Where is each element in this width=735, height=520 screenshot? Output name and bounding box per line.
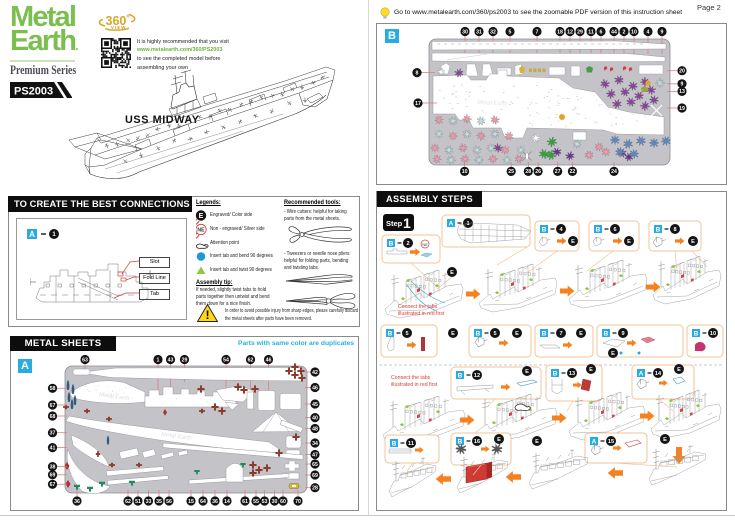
svg-text:32: 32 bbox=[490, 29, 496, 35]
svg-text:12: 12 bbox=[567, 29, 573, 35]
svg-text:14: 14 bbox=[655, 371, 662, 377]
svg-text:4: 4 bbox=[647, 29, 650, 35]
svg-text:7: 7 bbox=[536, 29, 539, 35]
svg-text:illustrated in red first: illustrated in red first bbox=[391, 382, 438, 388]
svg-text:A: A bbox=[639, 370, 644, 377]
svg-text:B: B bbox=[458, 372, 463, 379]
svg-text:58: 58 bbox=[50, 386, 56, 392]
svg-text:34: 34 bbox=[312, 441, 318, 447]
svg-text:14: 14 bbox=[224, 499, 230, 505]
svg-text:B: B bbox=[542, 226, 547, 233]
svg-text:60: 60 bbox=[280, 499, 286, 505]
svg-text:6: 6 bbox=[600, 29, 603, 35]
svg-text:B: B bbox=[553, 370, 558, 377]
svg-text:B: B bbox=[476, 330, 481, 337]
svg-text:46: 46 bbox=[312, 385, 318, 391]
svg-text:9: 9 bbox=[621, 331, 624, 337]
svg-text:Connect the tabs: Connect the tabs bbox=[398, 304, 438, 310]
svg-text:29: 29 bbox=[577, 29, 583, 35]
svg-text:E: E bbox=[571, 239, 575, 245]
svg-text:67: 67 bbox=[50, 482, 56, 488]
svg-text:46: 46 bbox=[266, 357, 272, 363]
svg-text:8: 8 bbox=[416, 70, 419, 76]
svg-text:47: 47 bbox=[312, 452, 318, 458]
svg-text:33: 33 bbox=[146, 499, 152, 505]
svg-text:B: B bbox=[656, 226, 661, 233]
svg-text:2: 2 bbox=[406, 241, 409, 247]
svg-text:5: 5 bbox=[405, 331, 408, 337]
svg-text:Connect the tabs: Connect the tabs bbox=[391, 375, 431, 381]
svg-text:E: E bbox=[497, 437, 501, 443]
svg-text:68: 68 bbox=[50, 414, 56, 420]
svg-text:36: 36 bbox=[74, 499, 80, 505]
svg-text:67: 67 bbox=[50, 403, 56, 409]
svg-text:15: 15 bbox=[188, 499, 194, 505]
svg-text:B: B bbox=[604, 330, 609, 337]
svg-text:E: E bbox=[535, 439, 539, 445]
svg-text:19: 19 bbox=[679, 106, 685, 112]
svg-text:10: 10 bbox=[462, 169, 468, 175]
svg-text:5: 5 bbox=[509, 29, 512, 35]
svg-text:15: 15 bbox=[608, 439, 614, 445]
svg-text:E: E bbox=[677, 367, 681, 373]
svg-text:63: 63 bbox=[82, 357, 88, 363]
svg-text:62: 62 bbox=[248, 357, 254, 363]
svg-text:48: 48 bbox=[312, 426, 318, 432]
svg-text:1: 1 bbox=[157, 357, 160, 363]
svg-text:28: 28 bbox=[525, 169, 531, 175]
svg-text:53: 53 bbox=[262, 499, 268, 505]
svg-text:E: E bbox=[579, 331, 583, 337]
svg-text:9: 9 bbox=[681, 82, 684, 88]
svg-text:E: E bbox=[451, 331, 455, 337]
svg-text:56: 56 bbox=[166, 499, 172, 505]
svg-text:12: 12 bbox=[474, 373, 480, 379]
svg-text:VIEW: VIEW bbox=[111, 25, 126, 30]
svg-text:E: E bbox=[589, 367, 593, 373]
svg-text:37: 37 bbox=[50, 431, 56, 437]
svg-text:B: B bbox=[542, 330, 547, 337]
svg-text:64: 64 bbox=[200, 499, 206, 505]
svg-text:28: 28 bbox=[312, 486, 318, 492]
svg-text:26: 26 bbox=[535, 169, 541, 175]
svg-text:E: E bbox=[515, 331, 519, 337]
svg-text:13: 13 bbox=[569, 371, 575, 377]
svg-text:B: B bbox=[389, 240, 394, 247]
svg-text:51: 51 bbox=[135, 499, 141, 505]
svg-text:NE: NE bbox=[197, 228, 205, 234]
svg-text:2: 2 bbox=[623, 29, 626, 35]
svg-text:E: E bbox=[663, 437, 667, 443]
svg-text:69: 69 bbox=[50, 473, 56, 479]
svg-text:18: 18 bbox=[557, 29, 563, 35]
svg-text:A: A bbox=[592, 438, 597, 445]
svg-text:13: 13 bbox=[679, 89, 685, 95]
svg-text:5: 5 bbox=[493, 331, 496, 337]
svg-text:31: 31 bbox=[476, 29, 482, 35]
svg-text:17: 17 bbox=[415, 101, 421, 107]
svg-text:54: 54 bbox=[223, 357, 229, 363]
svg-text:E: E bbox=[611, 351, 615, 357]
svg-text:30: 30 bbox=[272, 499, 278, 505]
svg-text:B: B bbox=[596, 226, 601, 233]
svg-text:E: E bbox=[525, 369, 529, 375]
svg-text:E: E bbox=[691, 239, 695, 245]
svg-text:NE: NE bbox=[422, 243, 428, 247]
svg-text:E: E bbox=[199, 213, 204, 220]
svg-text:11: 11 bbox=[408, 441, 414, 447]
svg-text:69: 69 bbox=[312, 473, 318, 479]
svg-text:8: 8 bbox=[673, 227, 676, 233]
svg-text:35: 35 bbox=[156, 499, 162, 505]
svg-text:38: 38 bbox=[50, 464, 56, 470]
svg-text:A: A bbox=[29, 230, 35, 239]
svg-text:B: B bbox=[694, 330, 699, 337]
svg-text:10: 10 bbox=[631, 29, 637, 35]
svg-text:E: E bbox=[627, 239, 631, 245]
svg-text:o: o bbox=[127, 14, 130, 20]
svg-text:20: 20 bbox=[679, 69, 685, 75]
svg-text:B: B bbox=[392, 440, 397, 447]
svg-text:36: 36 bbox=[212, 499, 218, 505]
svg-text:11: 11 bbox=[588, 29, 594, 35]
svg-text:45: 45 bbox=[312, 402, 318, 408]
svg-text:55: 55 bbox=[253, 499, 259, 505]
svg-text:22: 22 bbox=[570, 169, 576, 175]
svg-text:65: 65 bbox=[312, 462, 318, 468]
svg-text:24: 24 bbox=[611, 169, 617, 175]
svg-text:9: 9 bbox=[661, 29, 664, 35]
svg-text:29: 29 bbox=[182, 357, 188, 363]
svg-text:7: 7 bbox=[559, 331, 562, 337]
svg-text:43: 43 bbox=[168, 357, 174, 363]
svg-text:42: 42 bbox=[312, 370, 318, 376]
svg-text:10: 10 bbox=[710, 331, 716, 337]
svg-text:70: 70 bbox=[295, 499, 301, 505]
svg-text:!: ! bbox=[205, 308, 209, 322]
svg-text:44: 44 bbox=[611, 29, 617, 35]
svg-text:61: 61 bbox=[242, 499, 248, 505]
svg-text:illustrated in red first: illustrated in red first bbox=[398, 311, 445, 317]
svg-text:1: 1 bbox=[466, 221, 469, 227]
svg-text:16: 16 bbox=[474, 439, 480, 445]
svg-text:B: B bbox=[388, 330, 393, 337]
svg-text:E: E bbox=[450, 270, 454, 276]
svg-text:62: 62 bbox=[125, 499, 131, 505]
svg-text:27: 27 bbox=[555, 169, 561, 175]
svg-text:30: 30 bbox=[462, 29, 468, 35]
svg-text:6: 6 bbox=[613, 227, 616, 233]
svg-text:25: 25 bbox=[508, 169, 514, 175]
svg-text:41: 41 bbox=[50, 445, 56, 451]
svg-text:A: A bbox=[449, 220, 454, 227]
svg-text:40: 40 bbox=[312, 415, 318, 421]
